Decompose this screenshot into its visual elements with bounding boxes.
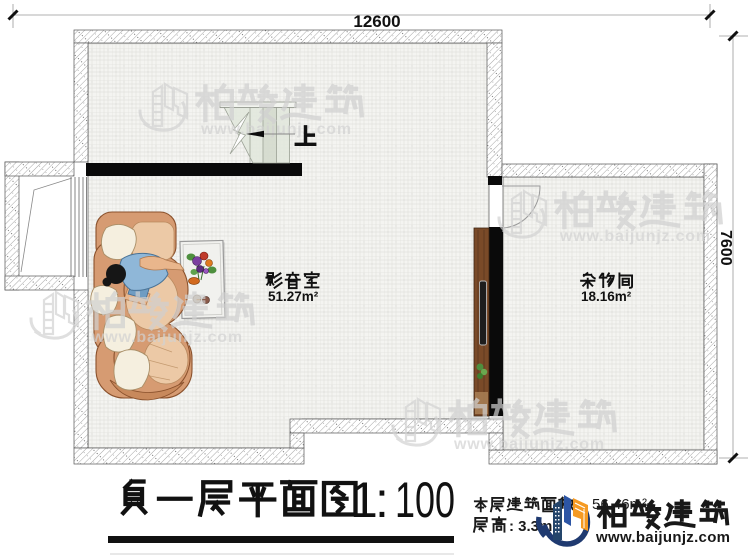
svg-text:12600: 12600 (353, 12, 400, 31)
svg-text:51.27m²: 51.27m² (268, 289, 319, 304)
svg-text:7600: 7600 (717, 230, 734, 266)
svg-text:www.baijunjz.com: www.baijunjz.com (595, 529, 730, 546)
svg-text:18.16m²: 18.16m² (581, 289, 632, 304)
svg-text:1:100: 1:100 (350, 472, 455, 528)
